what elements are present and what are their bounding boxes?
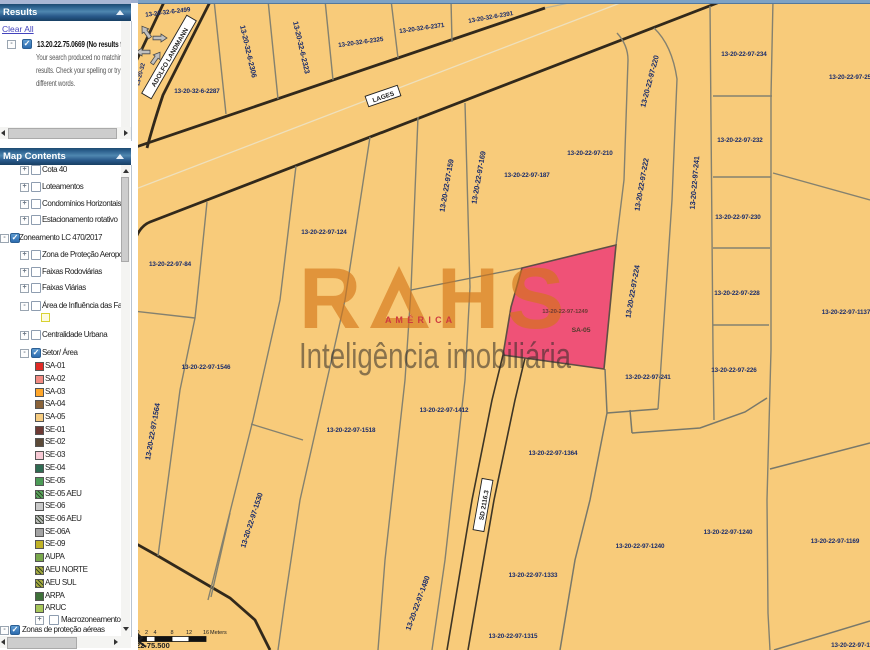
svg-text:8: 8: [170, 630, 173, 636]
svg-text:13-20-22-97-124: 13-20-22-97-124: [301, 229, 347, 236]
svg-text:13-20-22-97-1315: 13-20-22-97-1315: [489, 633, 538, 640]
svg-text:13-20-22-97-234: 13-20-22-97-234: [721, 51, 767, 58]
svg-text:13-20-22-97-1518: 13-20-22-97-1518: [327, 427, 376, 434]
svg-text:13-20-22-97-226: 13-20-22-97-226: [711, 367, 757, 374]
svg-text:13-20-22-97-11: 13-20-22-97-11: [831, 642, 870, 649]
svg-text:13-20-22-97-232: 13-20-22-97-232: [717, 137, 763, 144]
svg-text:13-20-22-97-1364: 13-20-22-97-1364: [529, 450, 578, 457]
svg-text:13-20-22-97-241: 13-20-22-97-241: [625, 374, 671, 381]
svg-text:Meters: Meters: [210, 630, 227, 636]
svg-text:13-20-22-97-1333: 13-20-22-97-1333: [509, 572, 558, 579]
svg-text:13-20-22-97-1169: 13-20-22-97-1169: [811, 538, 860, 545]
svg-text:Inteligência imobiliária: Inteligência imobiliária: [299, 335, 572, 376]
svg-text:13-20-22-97-1249: 13-20-22-97-1249: [542, 309, 588, 315]
svg-text:13-20-22-97-84: 13-20-22-97-84: [149, 261, 192, 268]
svg-text:2: 2: [145, 630, 148, 636]
svg-text:13-20-22-97-230: 13-20-22-97-230: [715, 214, 761, 221]
svg-text:13-20-22-97-187: 13-20-22-97-187: [504, 172, 550, 179]
svg-text:4: 4: [153, 630, 156, 636]
svg-text:13-20-22-97-25: 13-20-22-97-25: [829, 74, 870, 81]
svg-text:13-20-22-97-1240: 13-20-22-97-1240: [616, 543, 665, 550]
svg-text:R: R: [299, 251, 361, 347]
svg-text:13-20-22-97-1412: 13-20-22-97-1412: [420, 407, 469, 414]
svg-text:16: 16: [203, 630, 209, 636]
svg-text:13-20-22-97-1240: 13-20-22-97-1240: [704, 529, 753, 536]
svg-text:13-20-22-97-228: 13-20-22-97-228: [714, 290, 760, 297]
svg-text:A M É R I C A: A M É R I C A: [385, 315, 453, 325]
svg-text:13-20-22-97-1137: 13-20-22-97-1137: [822, 309, 870, 316]
svg-text:S: S: [507, 251, 564, 347]
svg-text:13-20-32-6-2287: 13-20-32-6-2287: [174, 88, 220, 95]
svg-text:13-20-22-97-210: 13-20-22-97-210: [567, 150, 613, 157]
svg-text:13-20-22-97-1546: 13-20-22-97-1546: [182, 364, 231, 371]
svg-text:12: 12: [186, 630, 192, 636]
svg-text:H: H: [437, 251, 499, 347]
svg-text:SA-05: SA-05: [572, 327, 591, 334]
